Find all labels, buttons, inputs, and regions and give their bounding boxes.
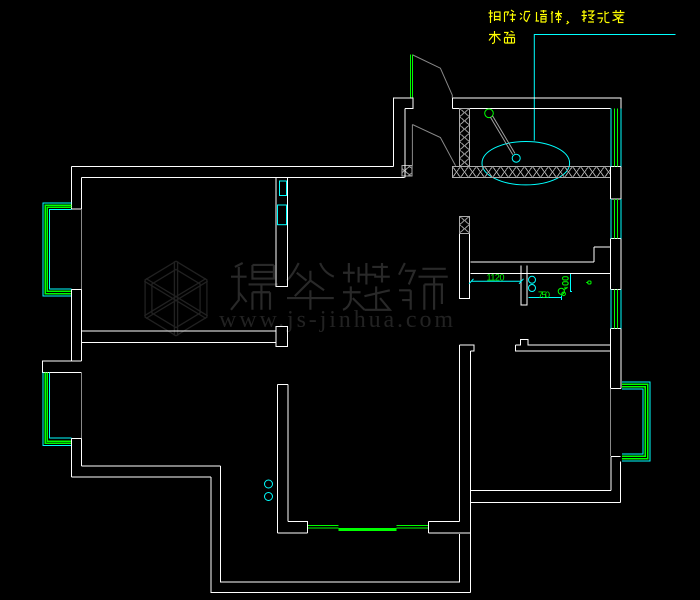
svg-text:1120: 1120 (487, 273, 505, 283)
svg-text:750: 750 (538, 290, 550, 300)
